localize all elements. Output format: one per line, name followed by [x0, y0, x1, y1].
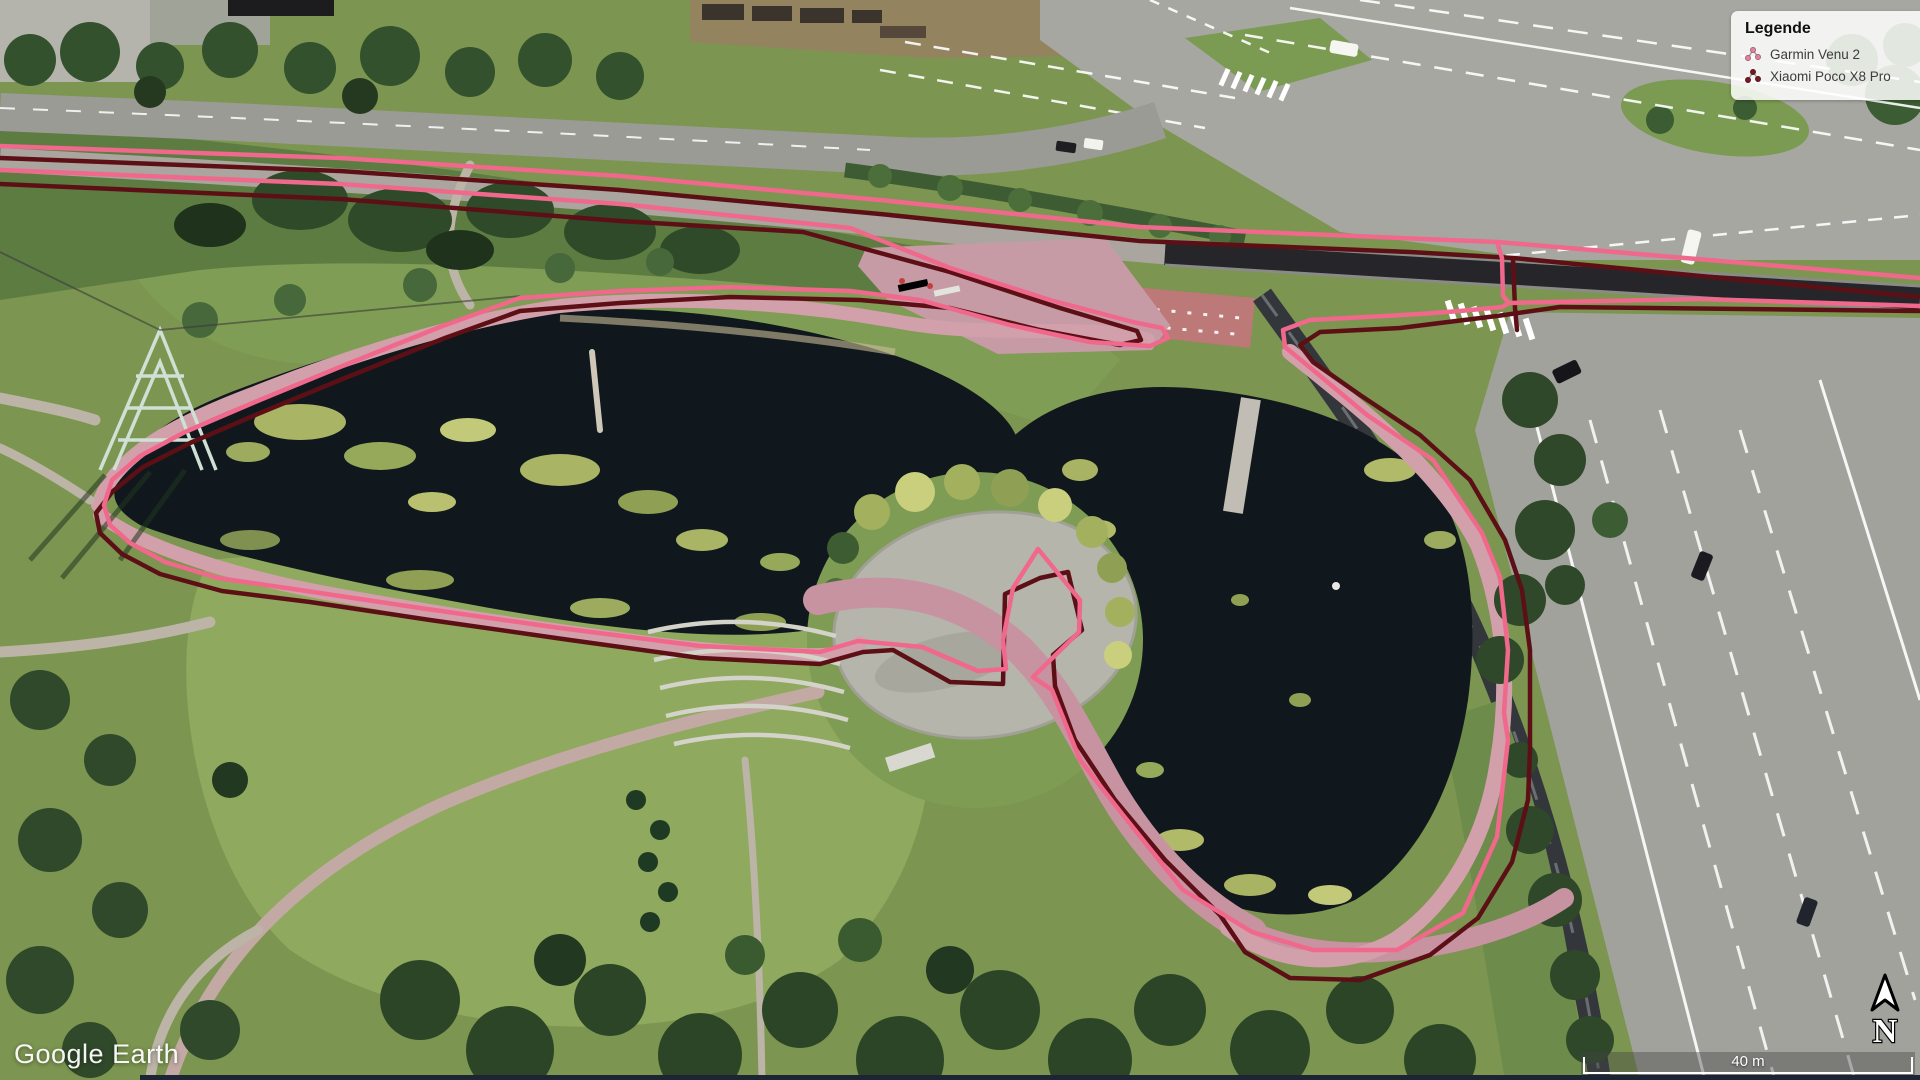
- google-earth-watermark: Google Earth: [14, 1039, 179, 1070]
- north-arrow[interactable]: N: [1862, 972, 1908, 1050]
- legend-label-garmin: Garmin Venu 2: [1770, 47, 1860, 62]
- legend-label-xiaomi: Xiaomi Poco X8 Pro: [1770, 69, 1891, 84]
- legend-item-garmin[interactable]: Garmin Venu 2: [1745, 46, 1910, 62]
- legend-panel: Legende Garmin Venu 2 Xiaomi Poco X8 Pro: [1731, 11, 1920, 100]
- north-arrow-glyph: [1872, 975, 1898, 1010]
- track-icon: [1745, 46, 1761, 62]
- north-label: N: [1873, 1013, 1898, 1050]
- building-roof: [228, 0, 334, 16]
- satellite-map[interactable]: [0, 0, 1920, 1080]
- scale-bar: 40 m: [1581, 1052, 1915, 1075]
- google-earth-viewport[interactable]: Legende Garmin Venu 2 Xiaomi Poco X8 Pro…: [0, 0, 1920, 1080]
- scale-bar-label: 40 m: [1581, 1053, 1915, 1070]
- bottom-edge-strip: [140, 1075, 1920, 1080]
- track-icon: [1745, 68, 1761, 84]
- legend-title: Legende: [1745, 20, 1910, 38]
- legend-item-xiaomi[interactable]: Xiaomi Poco X8 Pro: [1745, 68, 1910, 84]
- bird: [1332, 582, 1340, 590]
